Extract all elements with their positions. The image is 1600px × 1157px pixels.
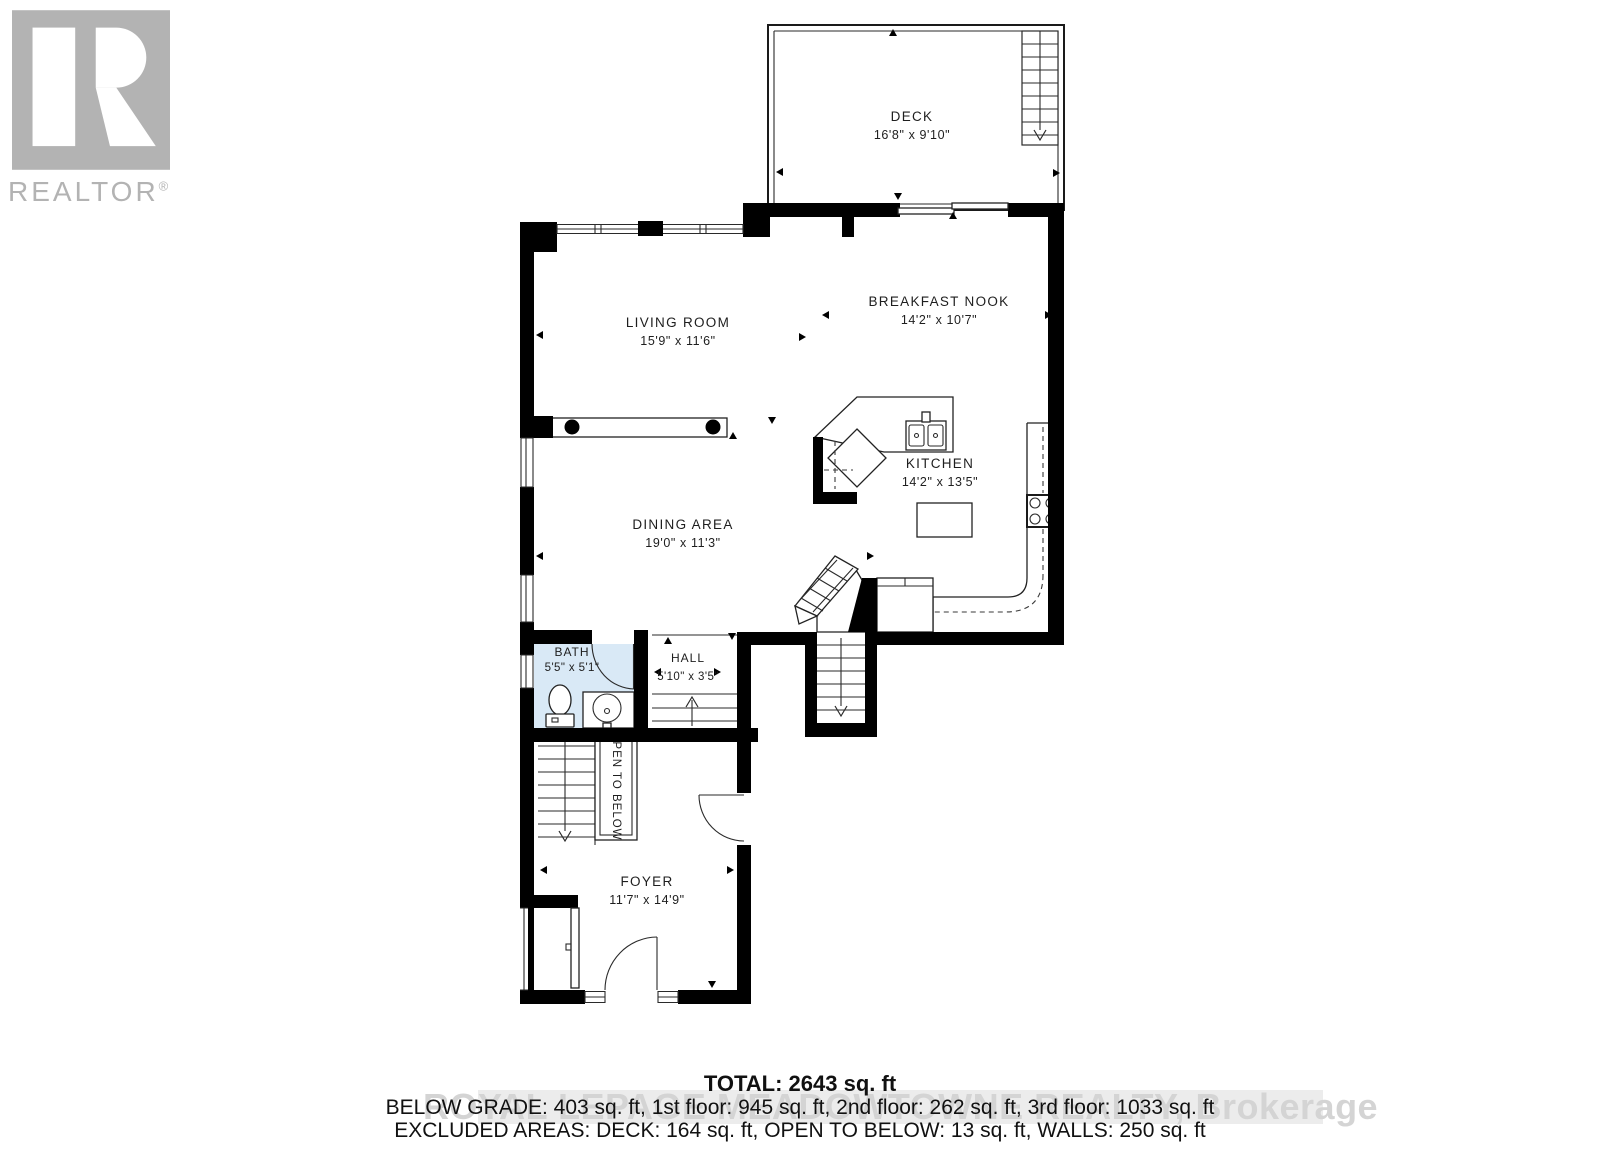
foyer-label: FOYER — [620, 874, 673, 889]
window-icon — [521, 575, 534, 622]
main-stairs-down — [817, 638, 865, 716]
faucet-icon — [922, 412, 930, 422]
living-room-label: LIVING ROOM — [626, 315, 730, 330]
closet-door-icon — [566, 908, 579, 988]
sidelight-window-icon — [585, 991, 605, 1003]
deck-label: DECK — [891, 109, 934, 124]
breakfast-nook-label: BREAKFAST NOOK — [869, 294, 1010, 309]
open-to-below-railing: OPEN TO BELOW — [595, 731, 637, 840]
kitchen-label: KITCHEN — [906, 456, 974, 471]
dining-area-dims: 19'0" x 11'3" — [645, 536, 720, 550]
area-summary: TOTAL: 2643 sq. ft BELOW GRADE: 403 sq. … — [200, 1072, 1400, 1142]
vanity-sink-icon — [583, 692, 634, 728]
floor-plan-canvas: OPEN TO BELOW — [0, 0, 1600, 1157]
dimension-markers — [536, 29, 1060, 988]
dining-area-label: DINING AREA — [632, 517, 733, 532]
bath-dims: 5'5" x 5'1" — [545, 662, 600, 674]
sidelight-window-icon — [658, 991, 678, 1003]
living-room-dims: 15'9" x 11'6" — [640, 334, 715, 348]
entry-door-icon — [585, 937, 678, 1003]
living-room-shelf — [550, 418, 727, 437]
kitchen-dims: 14'2" x 13'5" — [902, 475, 978, 489]
living-room-windows — [557, 221, 743, 236]
window-icon — [521, 655, 534, 688]
floor-plan-page: REALTOR® ROYAL LEPAGE MEADOWTOWNE REALTY… — [0, 0, 1600, 1157]
excluded-areas-text: EXCLUDED AREAS: DECK: 164 sq. ft, OPEN T… — [200, 1119, 1400, 1142]
deck-dims: 16'8" x 9'10" — [874, 128, 950, 142]
column-icon — [565, 420, 580, 435]
foyer-side-door-icon — [699, 795, 744, 841]
breakfast-nook-dims: 14'2" x 10'7" — [901, 313, 977, 327]
stairs-down-arrow — [559, 831, 571, 841]
bath-label: BATH — [554, 645, 589, 659]
hall-dims: 5'10" x 3'5" — [657, 671, 718, 683]
column-icon — [706, 420, 721, 435]
deck-stairs — [1022, 31, 1058, 145]
basement-stairs-down — [538, 733, 595, 845]
floor-areas-text: BELOW GRADE: 403 sq. ft, 1st floor: 945 … — [200, 1096, 1400, 1119]
window-icon — [520, 908, 528, 990]
walls — [520, 203, 1064, 1004]
kitchen-island — [917, 503, 972, 537]
foyer-dims: 11'7" x 14'9" — [609, 893, 684, 907]
stairs-down-arrow — [835, 706, 847, 716]
total-area-text: TOTAL: 2643 sq. ft — [200, 1072, 1400, 1096]
open-to-below-label: OPEN TO BELOW — [610, 731, 622, 840]
fridge-icon — [877, 578, 933, 632]
window-icon — [521, 438, 534, 487]
hall-label: HALL — [671, 651, 705, 665]
